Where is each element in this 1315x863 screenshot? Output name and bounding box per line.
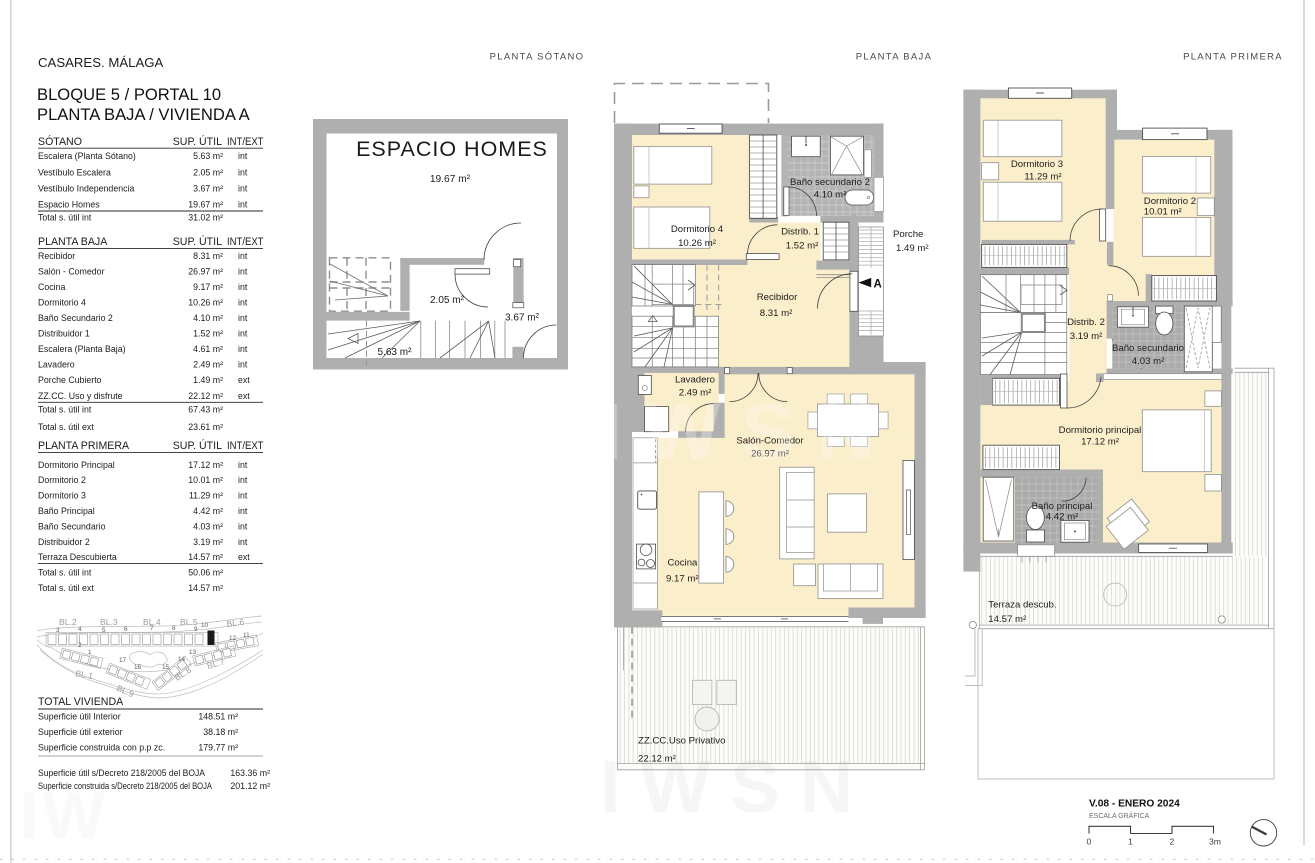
- svg-text:Baño secundario: Baño secundario: [1112, 343, 1184, 354]
- svg-text:17.12 m²: 17.12 m²: [188, 460, 223, 470]
- svg-text:9.17 m²: 9.17 m²: [193, 282, 223, 292]
- svg-text:SÓTANO: SÓTANO: [38, 135, 82, 148]
- svg-text:int: int: [238, 344, 248, 354]
- svg-text:Vestíbulo Independencia: Vestíbulo Independencia: [38, 184, 134, 194]
- svg-text:16: 16: [134, 664, 142, 671]
- svg-text:2.05 m²: 2.05 m²: [430, 295, 465, 306]
- svg-text:Total s. útil int: Total s. útil int: [38, 568, 92, 578]
- svg-text:SUP. ÚTIL: SUP. ÚTIL: [173, 135, 222, 148]
- svg-text:PLANTA BAJA: PLANTA BAJA: [856, 52, 932, 63]
- svg-text:PLANTA SÓTANO: PLANTA SÓTANO: [490, 52, 585, 63]
- svg-text:1.52 m²: 1.52 m²: [193, 328, 223, 338]
- svg-text:Superficie útil Interior: Superficie útil Interior: [38, 712, 121, 722]
- svg-text:int: int: [238, 475, 248, 485]
- svg-text:50.06 m²: 50.06 m²: [188, 568, 223, 578]
- svg-text:4.42 m²: 4.42 m²: [1046, 512, 1079, 523]
- svg-text:3.19 m²: 3.19 m²: [1070, 331, 1103, 342]
- svg-text:Dormitorio 4: Dormitorio 4: [38, 298, 86, 308]
- svg-text:Total s. útil int: Total s. útil int: [38, 213, 92, 223]
- svg-text:11.29 m²: 11.29 m²: [1024, 172, 1062, 183]
- svg-text:10.01 m²: 10.01 m²: [188, 475, 223, 485]
- svg-text:PLANTA BAJA: PLANTA BAJA: [38, 236, 108, 248]
- svg-text:5: 5: [102, 627, 106, 634]
- svg-text:4.42 m²: 4.42 m²: [193, 506, 223, 516]
- svg-text:14.57 m²: 14.57 m²: [188, 583, 223, 593]
- svg-text:11: 11: [243, 632, 250, 639]
- svg-text:PLANTA BAJA / VIVIENDA A: PLANTA BAJA / VIVIENDA A: [37, 105, 251, 124]
- svg-text:int: int: [238, 328, 248, 338]
- svg-text:4.03 m²: 4.03 m²: [193, 521, 223, 531]
- svg-text:INT/EXT: INT/EXT: [227, 136, 264, 148]
- svg-text:9: 9: [194, 626, 198, 633]
- svg-text:int: int: [238, 282, 248, 292]
- svg-text:Escalera (Planta Baja): Escalera (Planta Baja): [38, 344, 126, 354]
- svg-text:4.03 m²: 4.03 m²: [1132, 356, 1165, 367]
- svg-text:19.67 m²: 19.67 m²: [188, 200, 223, 210]
- svg-text:14: 14: [178, 656, 186, 663]
- svg-text:13: 13: [189, 649, 197, 656]
- svg-text:2: 2: [1170, 837, 1175, 847]
- svg-text:ZZ.CC. Uso y disfrute: ZZ.CC. Uso y disfrute: [38, 391, 123, 401]
- svg-text:int: int: [238, 537, 248, 547]
- svg-text:1.49 m²: 1.49 m²: [193, 375, 223, 385]
- svg-text:10.26 m²: 10.26 m²: [188, 298, 223, 308]
- svg-text:Recibidor: Recibidor: [757, 292, 798, 303]
- svg-text:Dormitorio principal: Dormitorio principal: [1059, 425, 1142, 436]
- svg-text:14.57 m²: 14.57 m²: [988, 614, 1027, 625]
- svg-text:V.08 - ENERO 2024: V.08 - ENERO 2024: [1089, 799, 1180, 810]
- svg-text:A: A: [874, 279, 882, 291]
- svg-text:int: int: [238, 506, 248, 516]
- svg-text:22.12 m²: 22.12 m²: [188, 391, 223, 401]
- svg-text:5.63 m²: 5.63 m²: [193, 151, 223, 161]
- svg-text:Baño principal: Baño principal: [1032, 501, 1093, 512]
- svg-text:Dormitorio Principal: Dormitorio Principal: [38, 460, 115, 470]
- svg-text:int: int: [238, 251, 248, 261]
- svg-text:Cocina: Cocina: [668, 558, 699, 569]
- svg-text:ext: ext: [238, 375, 250, 385]
- svg-text:BL.3: BL.3: [100, 617, 118, 627]
- svg-text:Total s. útil int: Total s. útil int: [38, 405, 92, 415]
- svg-text:3.19 m²: 3.19 m²: [193, 537, 223, 547]
- svg-text:int: int: [238, 200, 248, 210]
- svg-text:SUP. ÚTIL: SUP. ÚTIL: [173, 235, 222, 248]
- svg-text:int: int: [238, 313, 248, 323]
- svg-text:Espacio Homes: Espacio Homes: [38, 200, 100, 210]
- svg-text:4: 4: [78, 626, 82, 633]
- svg-text:12: 12: [229, 635, 237, 642]
- svg-text:PLANTA PRIMERA: PLANTA PRIMERA: [1183, 52, 1283, 63]
- svg-text:int: int: [238, 266, 248, 276]
- svg-text:4.61 m²: 4.61 m²: [193, 344, 223, 354]
- svg-text:10.01 m²: 10.01 m²: [1144, 207, 1183, 218]
- svg-text:int: int: [238, 167, 248, 177]
- svg-text:1: 1: [88, 649, 92, 656]
- svg-text:int: int: [238, 460, 248, 470]
- svg-text:Distrib. 1: Distrib. 1: [781, 227, 819, 238]
- svg-text:Lavadero: Lavadero: [38, 359, 75, 369]
- svg-text:Vestíbulo Escalera: Vestíbulo Escalera: [38, 167, 111, 177]
- svg-text:Cocina: Cocina: [38, 282, 65, 292]
- svg-text:1.49 m²: 1.49 m²: [896, 243, 929, 254]
- svg-text:int: int: [238, 298, 248, 308]
- svg-text:3m: 3m: [1209, 837, 1221, 847]
- svg-text:Total s. útil ext: Total s. útil ext: [38, 422, 94, 432]
- svg-text:IWSN: IWSN: [600, 745, 873, 828]
- svg-text:6: 6: [124, 626, 128, 633]
- svg-text:IW: IW: [20, 778, 109, 852]
- svg-text:4.10 m²: 4.10 m²: [814, 190, 847, 201]
- svg-text:23.61 m²: 23.61 m²: [188, 422, 223, 432]
- svg-text:int: int: [238, 184, 248, 194]
- svg-text:26.97 m²: 26.97 m²: [188, 266, 223, 276]
- svg-text:Dormitorio 3: Dormitorio 3: [1011, 159, 1063, 170]
- svg-text:Baño Principal: Baño Principal: [38, 506, 95, 516]
- svg-text:Superficie construida con p.p: Superficie construida con p.p zc.: [38, 743, 165, 753]
- svg-text:Baño Secundario: Baño Secundario: [38, 521, 106, 531]
- svg-text:31.02 m²: 31.02 m²: [188, 213, 223, 223]
- svg-text:TOTAL VIVIENDA: TOTAL VIVIENDA: [38, 696, 124, 708]
- svg-text:2.49 m²: 2.49 m²: [193, 359, 223, 369]
- svg-text:Baño secundario 2: Baño secundario 2: [790, 177, 870, 188]
- svg-text:3.67 m²: 3.67 m²: [193, 184, 223, 194]
- svg-text:38.18 m²: 38.18 m²: [203, 727, 238, 737]
- svg-text:Baño Secundario 2: Baño Secundario 2: [38, 313, 113, 323]
- svg-text:8.31 m²: 8.31 m²: [193, 251, 223, 261]
- svg-text:ESPACIO HOMES: ESPACIO HOMES: [356, 137, 548, 161]
- svg-text:14.57 m²: 14.57 m²: [188, 552, 223, 562]
- svg-text:19.67 m²: 19.67 m²: [430, 174, 471, 185]
- svg-text:4.10 m²: 4.10 m²: [193, 313, 223, 323]
- svg-text:11.29 m²: 11.29 m²: [189, 491, 223, 501]
- svg-text:Total s. útil ext: Total s. útil ext: [38, 583, 94, 593]
- svg-text:IWSN: IWSN: [600, 387, 897, 476]
- svg-text:Salón - Comedor: Salón - Comedor: [38, 266, 105, 276]
- svg-text:0: 0: [1087, 837, 1092, 847]
- svg-text:8.31 m²: 8.31 m²: [760, 308, 793, 319]
- svg-text:Escalera (Planta Sótano): Escalera (Planta Sótano): [38, 151, 136, 161]
- svg-text:CASARES. MÁLAGA: CASARES. MÁLAGA: [38, 55, 164, 70]
- svg-text:ext: ext: [238, 552, 250, 562]
- svg-text:5.63 m²: 5.63 m²: [378, 347, 413, 358]
- svg-text:Distribuidor 2: Distribuidor 2: [38, 537, 90, 547]
- svg-text:Lavadero: Lavadero: [675, 375, 715, 386]
- svg-text:10.26 m²: 10.26 m²: [678, 238, 717, 249]
- svg-text:10: 10: [201, 622, 209, 629]
- svg-text:Dormitorio 2: Dormitorio 2: [38, 475, 86, 485]
- svg-text:int: int: [238, 151, 248, 161]
- svg-text:163.36 m²: 163.36 m²: [230, 768, 270, 778]
- svg-text:179.77 m²: 179.77 m²: [198, 743, 238, 753]
- svg-text:Terraza descub.: Terraza descub.: [988, 600, 1056, 611]
- svg-text:Dormitorio 3: Dormitorio 3: [38, 491, 86, 501]
- svg-text:Dormitorio 4: Dormitorio 4: [671, 224, 724, 235]
- svg-text:9.17 m²: 9.17 m²: [666, 574, 699, 585]
- svg-text:3.67 m²: 3.67 m²: [505, 313, 540, 324]
- svg-text:PLANTA PRIMERA: PLANTA PRIMERA: [38, 440, 130, 452]
- svg-text:1: 1: [1128, 837, 1133, 847]
- svg-text:int: int: [238, 491, 248, 501]
- svg-text:15: 15: [162, 664, 170, 671]
- svg-text:2: 2: [78, 642, 82, 649]
- svg-text:BL.2: BL.2: [59, 617, 77, 627]
- svg-text:148.51 m²: 148.51 m²: [198, 712, 238, 722]
- svg-text:SUP. ÚTIL: SUP. ÚTIL: [173, 439, 222, 452]
- svg-text:7: 7: [150, 625, 154, 632]
- svg-text:2.05 m²: 2.05 m²: [193, 167, 223, 177]
- svg-text:Terraza Descubierta: Terraza Descubierta: [38, 552, 117, 562]
- svg-text:ext: ext: [238, 391, 250, 401]
- svg-text:int: int: [238, 359, 248, 369]
- svg-text:BLOQUE 5 / PORTAL 10: BLOQUE 5 / PORTAL 10: [37, 85, 221, 104]
- svg-text:1.52 m²: 1.52 m²: [786, 241, 819, 252]
- svg-text:8: 8: [172, 625, 176, 632]
- svg-text:Porche Cubierto: Porche Cubierto: [38, 375, 102, 385]
- svg-text:int: int: [238, 521, 248, 531]
- svg-text:ESCALA GRÁFICA: ESCALA GRÁFICA: [1089, 811, 1150, 820]
- svg-text:Superficie útil exterior: Superficie útil exterior: [38, 727, 123, 737]
- svg-text:3: 3: [56, 627, 60, 634]
- svg-text:INT/EXT: INT/EXT: [227, 440, 264, 452]
- svg-text:Distribuidor 1: Distribuidor 1: [38, 328, 90, 338]
- svg-text:201.12 m²: 201.12 m²: [230, 781, 270, 791]
- svg-text:Dormitorio 2: Dormitorio 2: [1144, 196, 1196, 207]
- svg-text:67.43 m²: 67.43 m²: [188, 405, 223, 415]
- svg-text:Distrib. 2: Distrib. 2: [1067, 317, 1105, 328]
- svg-text:Superficie útil s/Decreto 218/: Superficie útil s/Decreto 218/2005 del B…: [38, 768, 205, 778]
- svg-text:17: 17: [119, 657, 127, 664]
- svg-text:Porche: Porche: [893, 229, 923, 240]
- svg-text:17.12 m²: 17.12 m²: [1081, 437, 1120, 448]
- svg-text:Recibidor: Recibidor: [38, 251, 75, 261]
- svg-text:INT/EXT: INT/EXT: [227, 236, 264, 248]
